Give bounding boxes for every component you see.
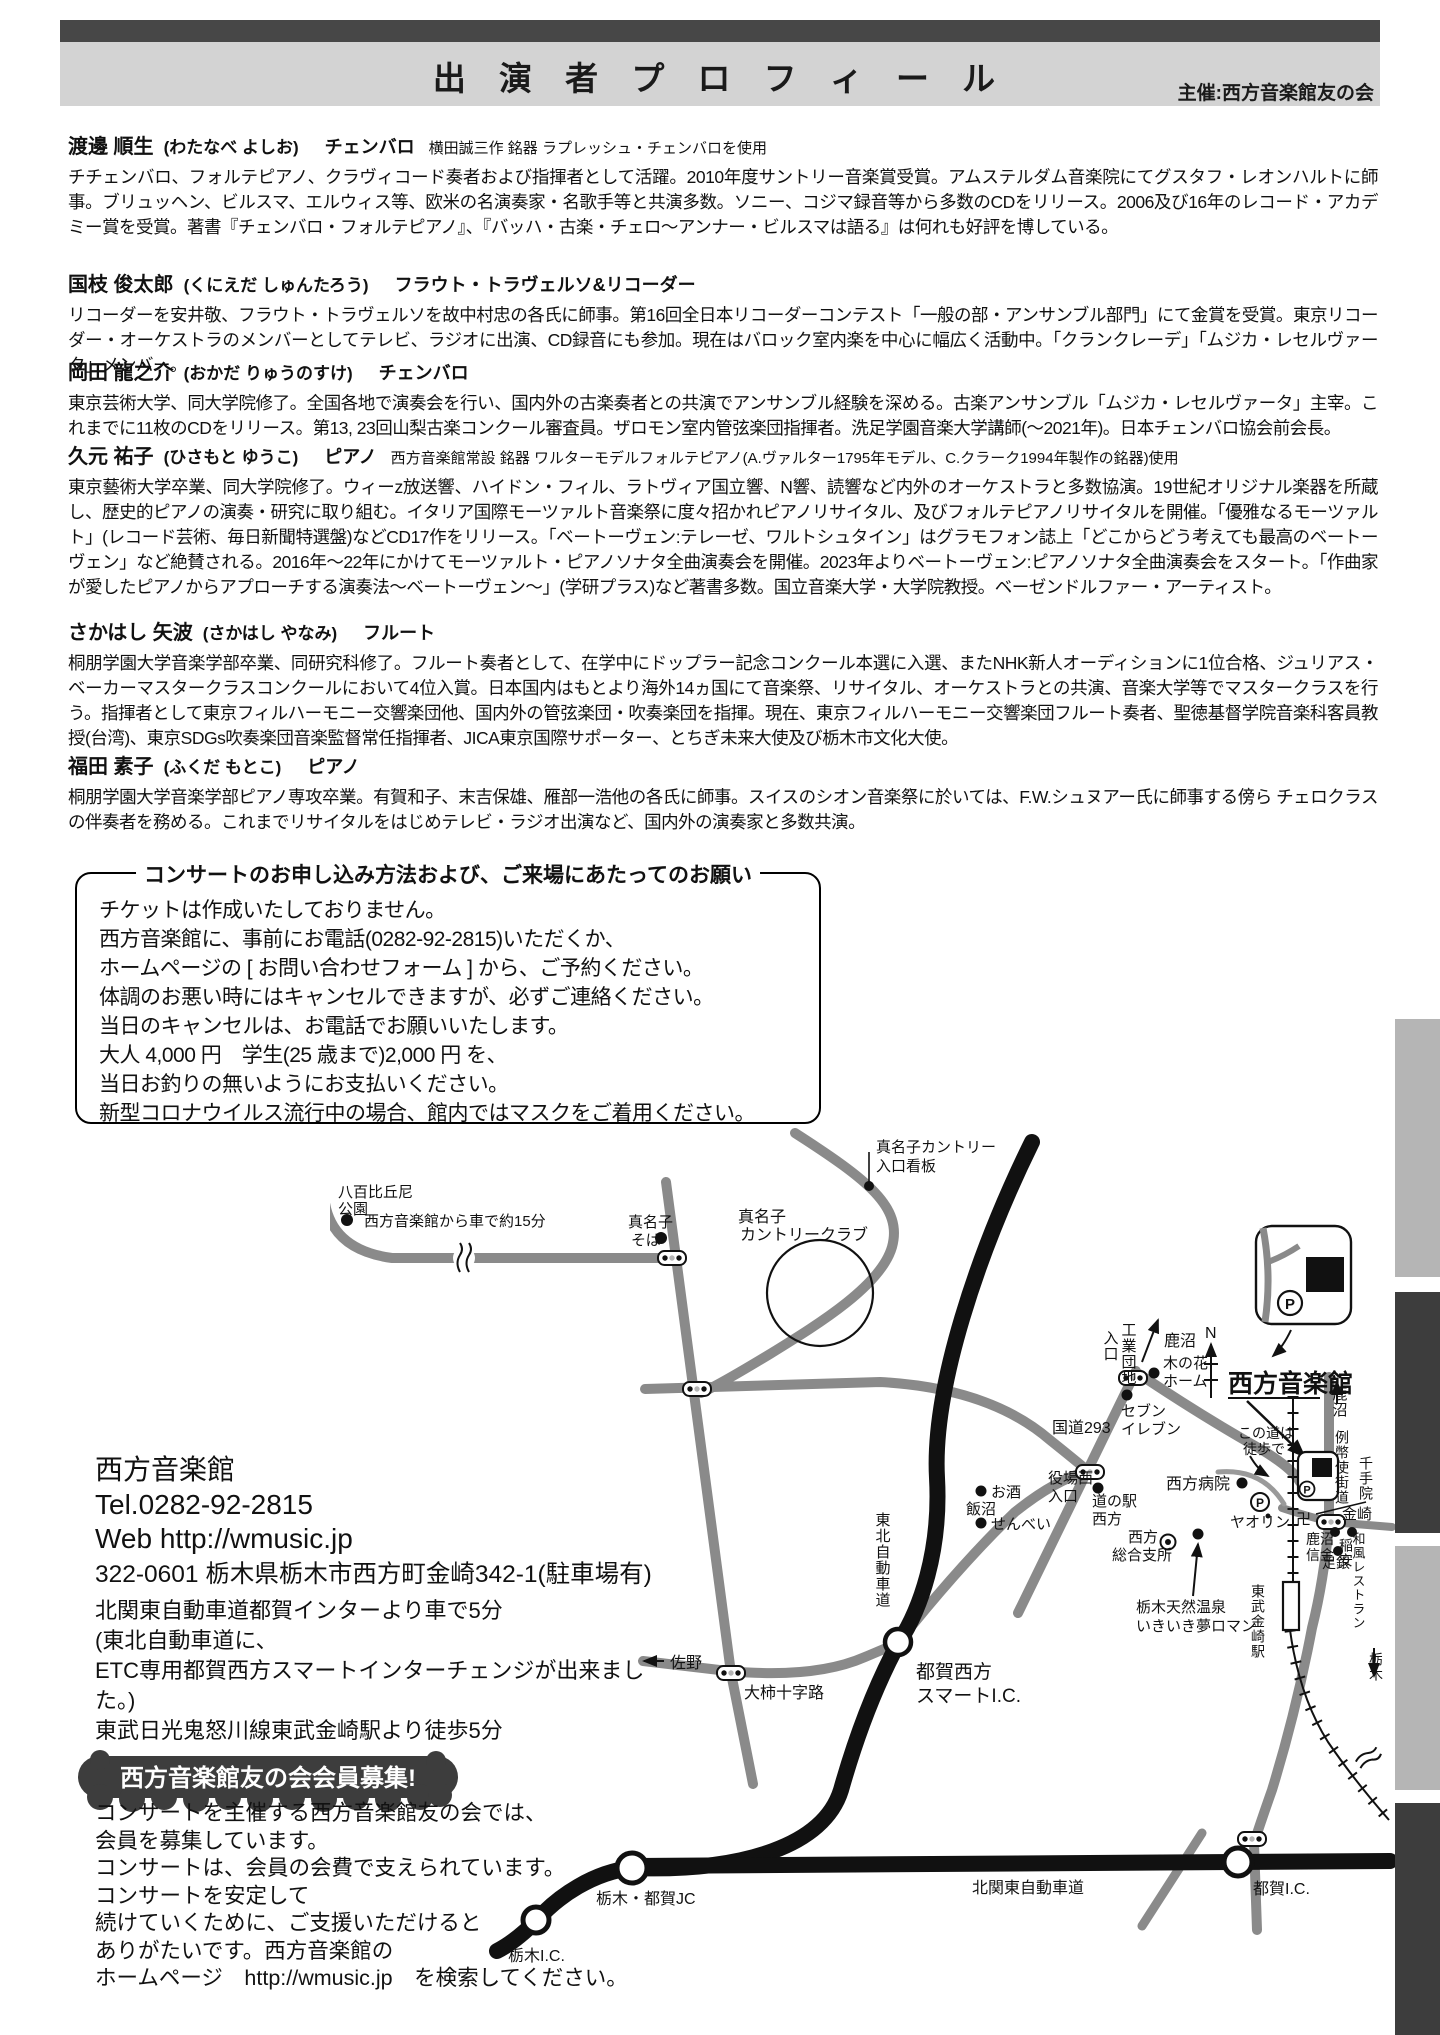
- membership-line: コンサートは、会員の会費で支えられています。: [95, 1855, 628, 1883]
- performer-name-row: 渡邊 順生(わたなべ よしお)チェンバロ横田誠三作 銘器 ラプレッシュ・チェンバ…: [68, 130, 1378, 159]
- traffic-signal-icons: [658, 1251, 1345, 1846]
- map-label-michinoeki1: 道の駅: [1092, 1493, 1137, 1510]
- edge-bar-dark-2: [1395, 1803, 1440, 2035]
- performer-kana: (ふくだ もとこ): [164, 758, 282, 777]
- access-line: 東武日光鬼怒川線東武金崎駅より徒歩5分: [95, 1716, 655, 1746]
- performer-name: 福田 素子: [68, 756, 154, 778]
- venue-building-icon: [1312, 1458, 1332, 1477]
- performer-name-row: さかはし 矢波(さかはし やなみ)フルート: [68, 616, 1378, 645]
- performer-name-row: 久元 祐子(ひさもと ゆうこ)ピアノ西方音楽館常設 銘器 ワルターモデルフォルテ…: [68, 440, 1378, 469]
- map-label-tsuga-ic: 都賀I.C.: [1253, 1880, 1310, 1898]
- parking-p-label: P: [1256, 1496, 1264, 1510]
- membership-text: コンサートを主催する西方音楽館友の会では、 会員を募集しています。 コンサートは…: [95, 1800, 628, 1993]
- map-label-kogyo: 工業団地: [1120, 1322, 1137, 1386]
- performer-bio: 桐朋学園大学音楽学部卒業、同研究科修了。フルート奏者として、在学中にドップラー記…: [68, 651, 1378, 751]
- map-label-kanuma-top: 鹿沼: [1164, 1332, 1196, 1350]
- profile-watanabe: 渡邊 順生(わたなべ よしお)チェンバロ横田誠三作 銘器 ラプレッシュ・チェンバ…: [68, 130, 1378, 240]
- map-label-senjuin: 千手院: [1358, 1456, 1374, 1501]
- smart-ic-circle: [885, 1629, 911, 1655]
- booking-line: ホームページの [ お問い合わせフォーム ] から、ご予約ください。: [99, 954, 819, 983]
- venue-address: 322-0601 栃木県栃木市西方町金崎342-1(駐車場有): [95, 1558, 655, 1592]
- membership-line: 会員を募集しています。: [95, 1828, 628, 1856]
- venue-tel: Tel.0282-92-2815: [95, 1488, 655, 1522]
- map-label-shisho2: 総合支所: [1112, 1547, 1172, 1564]
- map-label-yaorin: ヤオリン: [1230, 1514, 1290, 1531]
- parking-p-label: P: [1303, 1485, 1310, 1497]
- performer-kana: (わたなべ よしお): [164, 138, 299, 157]
- performer-name-row: 福田 素子(ふくだ もとこ)ピアノ: [68, 750, 1378, 779]
- map-label-konomichi1: この道は: [1238, 1425, 1294, 1441]
- performer-note: 横田誠三作 銘器 ラプレッシュ・チェンバロを使用: [429, 140, 767, 157]
- map-label-r293: 国道293: [1052, 1419, 1111, 1437]
- booking-line: 当日お釣りの無いようにお支払いください。: [99, 1070, 819, 1099]
- booking-box-title: コンサートのお申し込み方法および、ご来場にあたってのお願い: [136, 859, 760, 889]
- membership-line: コンサートを主催する西方音楽館友の会では、: [95, 1800, 628, 1828]
- map-label-kanban1: 真名子カントリー: [876, 1138, 996, 1156]
- membership-line: コンサートを安定して: [95, 1883, 628, 1911]
- performer-instrument: フルート: [363, 623, 435, 643]
- road-break-icon: [1352, 1742, 1384, 1773]
- performer-bio: 桐朋学園大学音楽学部ピアノ専攻卒業。有賀和子、末吉保雄、雁部一浩他の各氏に師事。…: [68, 785, 1378, 835]
- performer-kana: (ひさもと ゆうこ): [164, 448, 299, 467]
- performer-name-row: 岡田 龍之介(おかだ りゅうのすけ)チェンバロ: [68, 356, 1378, 385]
- booking-line: 新型コロナウイルス流行中の場合、館内ではマスクをご着用ください。: [99, 1099, 819, 1128]
- performer-instrument: チェンバロ: [325, 137, 415, 157]
- map-label-kanasaki: 金崎: [1342, 1506, 1372, 1523]
- performer-kana: (さかはし やなみ): [203, 624, 337, 643]
- booking-line: 当日のキャンセルは、お電話でお願いいたします。: [99, 1012, 819, 1041]
- map-label-iriguchi: 入口: [1102, 1330, 1119, 1362]
- map-label-senbei: せんべい: [991, 1516, 1051, 1533]
- performer-name: 国枝 俊太郎: [68, 274, 174, 296]
- parking-p-label: P: [1285, 1296, 1295, 1313]
- membership-line: 続けていくために、ご支援いただけると: [95, 1910, 628, 1938]
- performer-name: 渡邊 順生: [68, 136, 154, 158]
- venue-name: 西方音楽館: [95, 1452, 655, 1488]
- yaorin-parking: P: [1251, 1493, 1269, 1511]
- booking-line: 体調のお悪い時にはキャンセルできますが、必ずご連絡ください。: [99, 983, 819, 1012]
- map-label-michinoeki2: 西方: [1092, 1511, 1122, 1528]
- map-label-shisho1: 西方: [1128, 1529, 1158, 1546]
- map-label-tohoku-exp: 東北自動車道: [874, 1512, 891, 1608]
- performer-instrument: チェンバロ: [379, 363, 469, 383]
- map-label-manji: 卍: [1296, 1511, 1311, 1528]
- access-line: (東北自動車道に、: [95, 1626, 655, 1656]
- performer-kana: (くにえだ しゅんたろう): [184, 276, 369, 295]
- performer-bio: 東京芸術大学、同大学院修了。全国各地で演奏会を行い、国内外の古楽奏者との共演でア…: [68, 391, 1378, 441]
- map-label-konomichi2: 徒歩で: [1243, 1441, 1285, 1457]
- booking-line: 大人 4,000 円 学生(25 歳まで)2,000 円 を、: [99, 1041, 819, 1070]
- performer-name: さかはし 矢波: [68, 622, 193, 644]
- map-label-ashigin: 足銀: [1322, 1555, 1350, 1571]
- parking-inset-box: P: [1256, 1226, 1351, 1324]
- road-break-icon: [453, 1243, 475, 1272]
- map-label-kitakanto: 北関東自動車道: [972, 1879, 1084, 1897]
- map-label-onsen2: いきいき夢ロマン: [1136, 1618, 1256, 1635]
- map-label-smart1: 都賀西方: [916, 1661, 992, 1683]
- venue-box: P: [1298, 1452, 1338, 1500]
- performer-bio: 東京藝術大学卒業、同大学院修了。ウィーz放送響、ハイドン・フィル、ラトヴィア国立…: [68, 475, 1378, 600]
- access-line: ETC専用都賀西方スマートインターチェンジが出来ました。): [95, 1656, 655, 1716]
- map-label-shinkin1: 鹿沼: [1306, 1531, 1334, 1547]
- tsuga-ic-circle: [1224, 1848, 1252, 1876]
- map-label-seven2: イレブン: [1121, 1420, 1181, 1438]
- map-label-kanban2: 入口看板: [876, 1157, 936, 1175]
- map-label-seven1: セブン: [1121, 1402, 1166, 1420]
- profile-sakahashi: さかはし 矢波(さかはし やなみ)フルート 桐朋学園大学音楽学部卒業、同研究科修…: [68, 616, 1378, 751]
- map-label-yaho1: 八百比丘尼: [338, 1184, 413, 1201]
- booking-box-lines: チケットは作成いたしておりません。 西方音楽館に、事前にお電話(0282-92-…: [77, 874, 819, 1128]
- performer-instrument: フラウト・トラヴェルソ&リコーダー: [395, 275, 696, 295]
- map-label-tochigi-down: 栃木: [1368, 1652, 1384, 1682]
- performer-name: 岡田 龍之介: [68, 362, 174, 384]
- profile-hisamoto: 久元 祐子(ひさもと ゆうこ)ピアノ西方音楽館常設 銘器 ワルターモデルフォルテ…: [68, 440, 1378, 600]
- venue-block-icon: [1306, 1257, 1344, 1292]
- map-label-cc2: カントリークラブ: [740, 1225, 868, 1244]
- organizer-text: 主催:西方音楽館友の会: [1178, 78, 1374, 105]
- map-label-tobu-station: 東武金崎駅: [1250, 1584, 1266, 1659]
- map-label-kanuma-right: 鹿沼: [1331, 1386, 1348, 1418]
- booking-info-box: コンサートのお申し込み方法および、ご来場にあたってのお願い チケットは作成いたし…: [75, 872, 821, 1124]
- map-label-osake: お酒: [991, 1484, 1021, 1501]
- performer-instrument: ピアノ: [307, 757, 359, 777]
- membership-badge-label: 西方音楽館友の会会員募集!: [120, 1764, 416, 1792]
- membership-line: ありがたいです。西方音楽館の: [95, 1938, 628, 1966]
- booking-line: チケットは作成いたしておりません。: [99, 896, 819, 925]
- venue-web-link[interactable]: Web http://wmusic.jp: [95, 1522, 655, 1556]
- performer-name: 久元 祐子: [68, 446, 154, 468]
- map-label-konohana2: ホーム: [1163, 1373, 1208, 1390]
- performer-instrument: ピアノ: [324, 447, 376, 467]
- map-label-byoin: 西方病院: [1166, 1475, 1230, 1493]
- map-label-yakuba1: 役場西: [1048, 1470, 1093, 1487]
- map-label-wafu: 和風レストラン: [1351, 1532, 1366, 1630]
- map-label-onsen1: 栃木天然温泉: [1136, 1599, 1226, 1616]
- edge-bar-dark-1: [1395, 1292, 1440, 1533]
- profile-okada: 岡田 龍之介(おかだ りゅうのすけ)チェンバロ 東京芸術大学、同大学院修了。全国…: [68, 356, 1378, 441]
- membership-line[interactable]: ホームページ http://wmusic.jp を検索してください。: [95, 1965, 628, 1993]
- map-label-yakuba2: 入口: [1048, 1488, 1078, 1505]
- top-accent-bar: [60, 20, 1380, 42]
- kitakanto-expressway-road: [630, 1861, 1390, 1866]
- map-label-drive15: 西方音楽館から車で約15分: [364, 1213, 546, 1230]
- map-label-reiheishi: 例幣使街道: [1334, 1430, 1350, 1505]
- compass-n-label: N: [1205, 1325, 1217, 1342]
- edge-bar-light-1: [1395, 1019, 1440, 1277]
- access-line: 北関東自動車道都賀インターより車で5分: [95, 1596, 655, 1626]
- map-label-sano: 佐野: [670, 1654, 702, 1672]
- performer-kana: (おかだ りゅうのすけ): [184, 364, 353, 383]
- map-label-smart2: スマートI.C.: [916, 1686, 1021, 1707]
- map-label-konohana1: 木の花: [1163, 1355, 1208, 1372]
- performer-bio: チチェンバロ、フォルテピアノ、クラヴィコード奏者および指揮者として活躍。2010…: [68, 165, 1378, 240]
- station-symbol: [1283, 1582, 1299, 1630]
- booking-line: 西方音楽館に、事前にお電話(0282-92-2815)いただくか、: [99, 925, 819, 954]
- edge-bar-light-2: [1395, 1546, 1440, 1790]
- performer-name-row: 国枝 俊太郎(くにえだ しゅんたろう)フラウト・トラヴェルソ&リコーダー: [68, 268, 1378, 297]
- venue-access: 北関東自動車道都賀インターより車で5分 (東北自動車道に、 ETC専用都賀西方ス…: [95, 1596, 655, 1746]
- profile-fukuda: 福田 素子(ふくだ もとこ)ピアノ 桐朋学園大学音楽学部ピアノ専攻卒業。有賀和子…: [68, 750, 1378, 835]
- performer-note: 西方音楽館常設 銘器 ワルターモデルフォルテピアノ(A.ヴァルター1795年モデ…: [391, 450, 1179, 467]
- map-label-soba2: そば: [631, 1232, 661, 1249]
- map-label-cc1: 真名子: [738, 1208, 786, 1226]
- venue-contact-block: 西方音楽館 Tel.0282-92-2815 Web http://wmusic…: [95, 1452, 655, 1746]
- map-label-soba1: 真名子: [628, 1213, 673, 1231]
- map-label-ogaki: 大柿十字路: [744, 1684, 824, 1702]
